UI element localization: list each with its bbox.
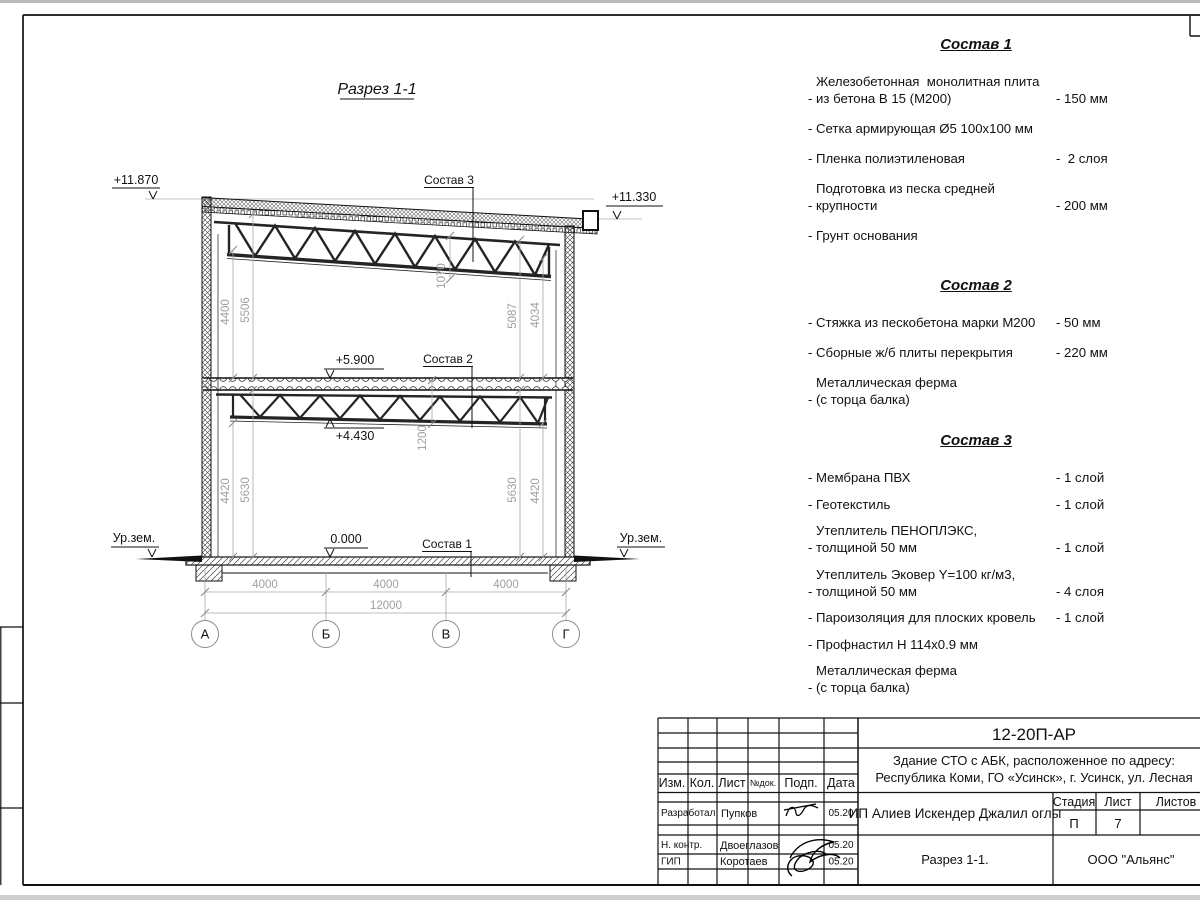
spec-section-2: Состав 2 -Стяжка из пескобетона марки М2…: [808, 277, 1144, 421]
callout-sostav3-text: Состав 3: [424, 173, 474, 187]
spec-item-text: Пленка полиэтиленовая: [816, 150, 1056, 167]
title-block-texts: Изм. Кол. Лист №док. Подп. Дата Разработ…: [659, 725, 1197, 868]
spec-item-dash: -: [808, 469, 816, 486]
spec-item-dash: -: [808, 609, 816, 626]
dim-5630-left: 5630: [240, 477, 252, 503]
signature-1: [784, 804, 818, 816]
spec-item-dash: -: [808, 120, 816, 137]
spec-item-dash: -: [808, 227, 816, 244]
spec-item: -Подготовка из песка средней крупности- …: [808, 180, 1144, 214]
spec-item-text: Мембрана ПВХ: [816, 469, 1056, 486]
stage-value: П: [1069, 816, 1078, 831]
spec-item: -Железобетонная монолитная плита из бето…: [808, 73, 1144, 107]
axis-a: А: [201, 627, 210, 642]
bottom-dimension-texts: 4000 4000 4000 12000: [252, 579, 519, 612]
ground-level-right: Ур.зем.: [617, 531, 665, 557]
elev-4430-text: +4.430: [336, 429, 375, 443]
axis-g: Г: [562, 627, 569, 642]
ground-slab: [136, 556, 640, 582]
project-line1: Здание СТО с АБК, расположенное по адрес…: [893, 753, 1175, 768]
section-title: Разрез 1-1: [337, 81, 416, 99]
spec-item-dash: -: [808, 150, 816, 167]
spec-item-dash: -: [808, 314, 816, 331]
spec-item-value: - 1 слой: [1056, 539, 1144, 556]
spec-item: -Стяжка из пескобетона марки М200- 50 мм: [808, 314, 1144, 331]
sheet-number: 7: [1114, 816, 1121, 831]
row1-name: Пупков: [721, 808, 757, 820]
spec-item-dash: -: [808, 496, 816, 513]
doc-code: 12-20П-АР: [992, 725, 1076, 744]
wall-left: [202, 197, 211, 557]
sheets-label: Листов: [1156, 795, 1197, 809]
ground-level-right-text: Ур.зем.: [620, 531, 662, 545]
axis-b: Б: [322, 627, 331, 642]
dim-5087: 5087: [507, 303, 519, 329]
spec-item: -Грунт основания: [808, 227, 1144, 244]
dim-5630-right: 5630: [507, 477, 519, 503]
spec-title-3: Состав 3: [808, 432, 1144, 449]
ground-level-left-text: Ур.зем.: [113, 531, 155, 545]
company-name: ООО "Альянс": [1088, 852, 1175, 867]
spec-item-value: - 1 слой: [1056, 609, 1144, 626]
dim-4000-1: 4000: [252, 579, 278, 591]
stage-label: Стадия: [1053, 795, 1096, 809]
elev-11870: +11.870: [112, 173, 160, 199]
ground-level-left: Ур.зем.: [111, 531, 159, 557]
spec-item-value: - 200 мм: [1056, 197, 1144, 214]
dim-1070: 1070: [436, 263, 448, 289]
spec-item-text: Стяжка из пескобетона марки М200: [816, 314, 1056, 331]
callout-sostav2-text: Состав 2: [423, 352, 473, 366]
dim-4000-2: 4000: [373, 579, 399, 591]
col-ndoc: №док.: [750, 778, 776, 788]
spec-item-text: Металлическая ферма (с торца балка): [816, 374, 1056, 408]
spec-item-text: Пароизоляция для плоских кровель: [816, 609, 1056, 626]
elev-11870-text: +11.870: [114, 173, 159, 187]
spec-item-dash: -: [808, 391, 816, 408]
spec-item-text: Грунт основания: [816, 227, 1056, 244]
row2-role: Н. контр.: [661, 840, 702, 851]
col-izm: Изм.: [659, 776, 686, 790]
dim-4420-left: 4420: [220, 478, 232, 504]
foundation-left: [196, 565, 222, 581]
spec-item-dash: -: [808, 539, 816, 556]
dim-4420-right: 4420: [530, 478, 542, 504]
spec-item: -Пленка полиэтиленовая- 2 слоя: [808, 150, 1144, 167]
spec-item-value: - 1 слой: [1056, 469, 1144, 486]
spec-item-value: - 220 мм: [1056, 344, 1144, 361]
dim-4034: 4034: [530, 302, 542, 328]
spec-section-1: Состав 1 -Железобетонная монолитная плит…: [808, 36, 1144, 257]
dim-1200: 1200: [417, 425, 429, 451]
elev-4430: +4.430: [324, 419, 384, 443]
ground-wedge-left: [136, 556, 202, 563]
spec-item-value: - 2 слоя: [1056, 150, 1144, 167]
project-line2: Республика Коми, ГО «Усинск», г. Усинск,…: [875, 770, 1192, 785]
row1-role: Разработал: [661, 807, 716, 819]
elev-11330: +11.330: [606, 190, 663, 219]
bottom-dimensions: [205, 568, 566, 620]
spec-item: -Металлическая ферма (с торца балка): [808, 374, 1144, 408]
spec-item: -Утеплитель Эковер Y=100 кг/м3, толщиной…: [808, 566, 1144, 600]
dim-5506: 5506: [240, 297, 252, 323]
spec-item-text: Утеплитель Эковер Y=100 кг/м3, толщиной …: [816, 566, 1056, 600]
spec-item-dash: -: [808, 679, 816, 696]
section-title-text: Разрез 1-1: [337, 81, 416, 98]
spec-item-text: Подготовка из песка средней крупности: [816, 180, 1056, 214]
spec-title-1: Состав 1: [808, 36, 1144, 53]
sheet-label: Лист: [1104, 795, 1131, 809]
spec-item-dash: -: [808, 90, 816, 107]
col-list: Лист: [718, 776, 745, 790]
elev-0000: 0.000: [324, 532, 368, 557]
axis-bubbles: А Б В Г: [192, 621, 580, 648]
callout-sostav1-text: Состав 1: [422, 537, 472, 551]
drawing-sheet: Разрез 1-1: [0, 0, 1200, 900]
floor-truss: [216, 395, 552, 429]
spec-item-value: - 1 слой: [1056, 496, 1144, 513]
spec-item-dash: -: [808, 344, 816, 361]
composition-callouts: Состав 3 Состав 2 Состав 1: [422, 173, 474, 577]
axis-v: В: [442, 627, 451, 642]
spec-item: -Мембрана ПВХ- 1 слой: [808, 469, 1144, 486]
spec-item-text: Металлическая ферма (с торца балка): [816, 662, 1056, 696]
spec-item-text: Сборные ж/б плиты перекрытия: [816, 344, 1056, 361]
roof-truss: [214, 222, 560, 281]
row2-name: Двоеглазов: [720, 840, 779, 852]
dim-4000-3: 4000: [493, 579, 519, 591]
spec-item: -Сборные ж/б плиты перекрытия- 220 мм: [808, 344, 1144, 361]
roof-parapet-cap: [583, 211, 598, 230]
spec-items-1: -Железобетонная монолитная плита из бето…: [808, 73, 1144, 244]
elev-11330-text: +11.330: [612, 190, 657, 204]
elev-0000-text: 0.000: [330, 532, 361, 546]
spec-items-2: -Стяжка из пескобетона марки М200- 50 мм…: [808, 314, 1144, 408]
spec-item-dash: -: [808, 197, 816, 214]
foundation-right: [550, 565, 576, 581]
spec-item: -Пароизоляция для плоских кровель- 1 сло…: [808, 609, 1144, 626]
elev-5900: +5.900: [324, 353, 384, 378]
col-kol: Кол.: [690, 776, 715, 790]
sheet-title: Разрез 1-1.: [921, 852, 988, 867]
spec-item-text: Сетка армирующая Ø5 100х100 мм: [816, 120, 1056, 137]
spec-item-text: Геотекстиль: [816, 496, 1056, 513]
spec-item-dash: -: [808, 583, 816, 600]
roof-assembly: [202, 198, 598, 235]
col-data: Дата: [827, 776, 855, 790]
spec-item: -Геотекстиль- 1 слой: [808, 496, 1144, 513]
dim-4400: 4400: [220, 299, 232, 325]
elev-5900-text: +5.900: [336, 353, 375, 367]
client-name: ИП Алиев Искендер Джалил оглы: [849, 806, 1062, 821]
wall-right: [565, 226, 574, 557]
ground-wedge-right: [574, 556, 640, 563]
spec-item: -Металлическая ферма (с торца балка): [808, 662, 1144, 696]
row3-role: ГИП: [661, 857, 681, 868]
spec-section-3: Состав 3 -Мембрана ПВХ- 1 слой-Геотексти…: [808, 432, 1144, 706]
spec-title-2: Состав 2: [808, 277, 1144, 294]
spec-item-text: Профнастил Н 114х0.9 мм: [816, 636, 1056, 653]
spec-items-3: -Мембрана ПВХ- 1 слой-Геотекстиль- 1 сло…: [808, 469, 1144, 696]
spec-item: -Сетка армирующая Ø5 100х100 мм: [808, 120, 1144, 137]
row3-date: 05.20: [828, 857, 853, 868]
spec-item: -Утеплитель ПЕНОПЛЭКС, толщиной 50 мм- 1…: [808, 522, 1144, 556]
spec-item: -Профнастил Н 114х0.9 мм: [808, 636, 1144, 653]
spec-item-value: - 4 слоя: [1056, 583, 1144, 600]
spec-item-dash: -: [808, 636, 816, 653]
spec-item-text: Железобетонная монолитная плита из бетон…: [816, 73, 1056, 107]
col-podp: Подп.: [784, 776, 817, 790]
dim-12000: 12000: [370, 600, 402, 612]
row3-name: Коротаев: [720, 856, 768, 868]
spec-item-value: - 50 мм: [1056, 314, 1144, 331]
spec-item-value: - 150 мм: [1056, 90, 1144, 107]
spec-item-text: Утеплитель ПЕНОПЛЭКС, толщиной 50 мм: [816, 522, 1056, 556]
